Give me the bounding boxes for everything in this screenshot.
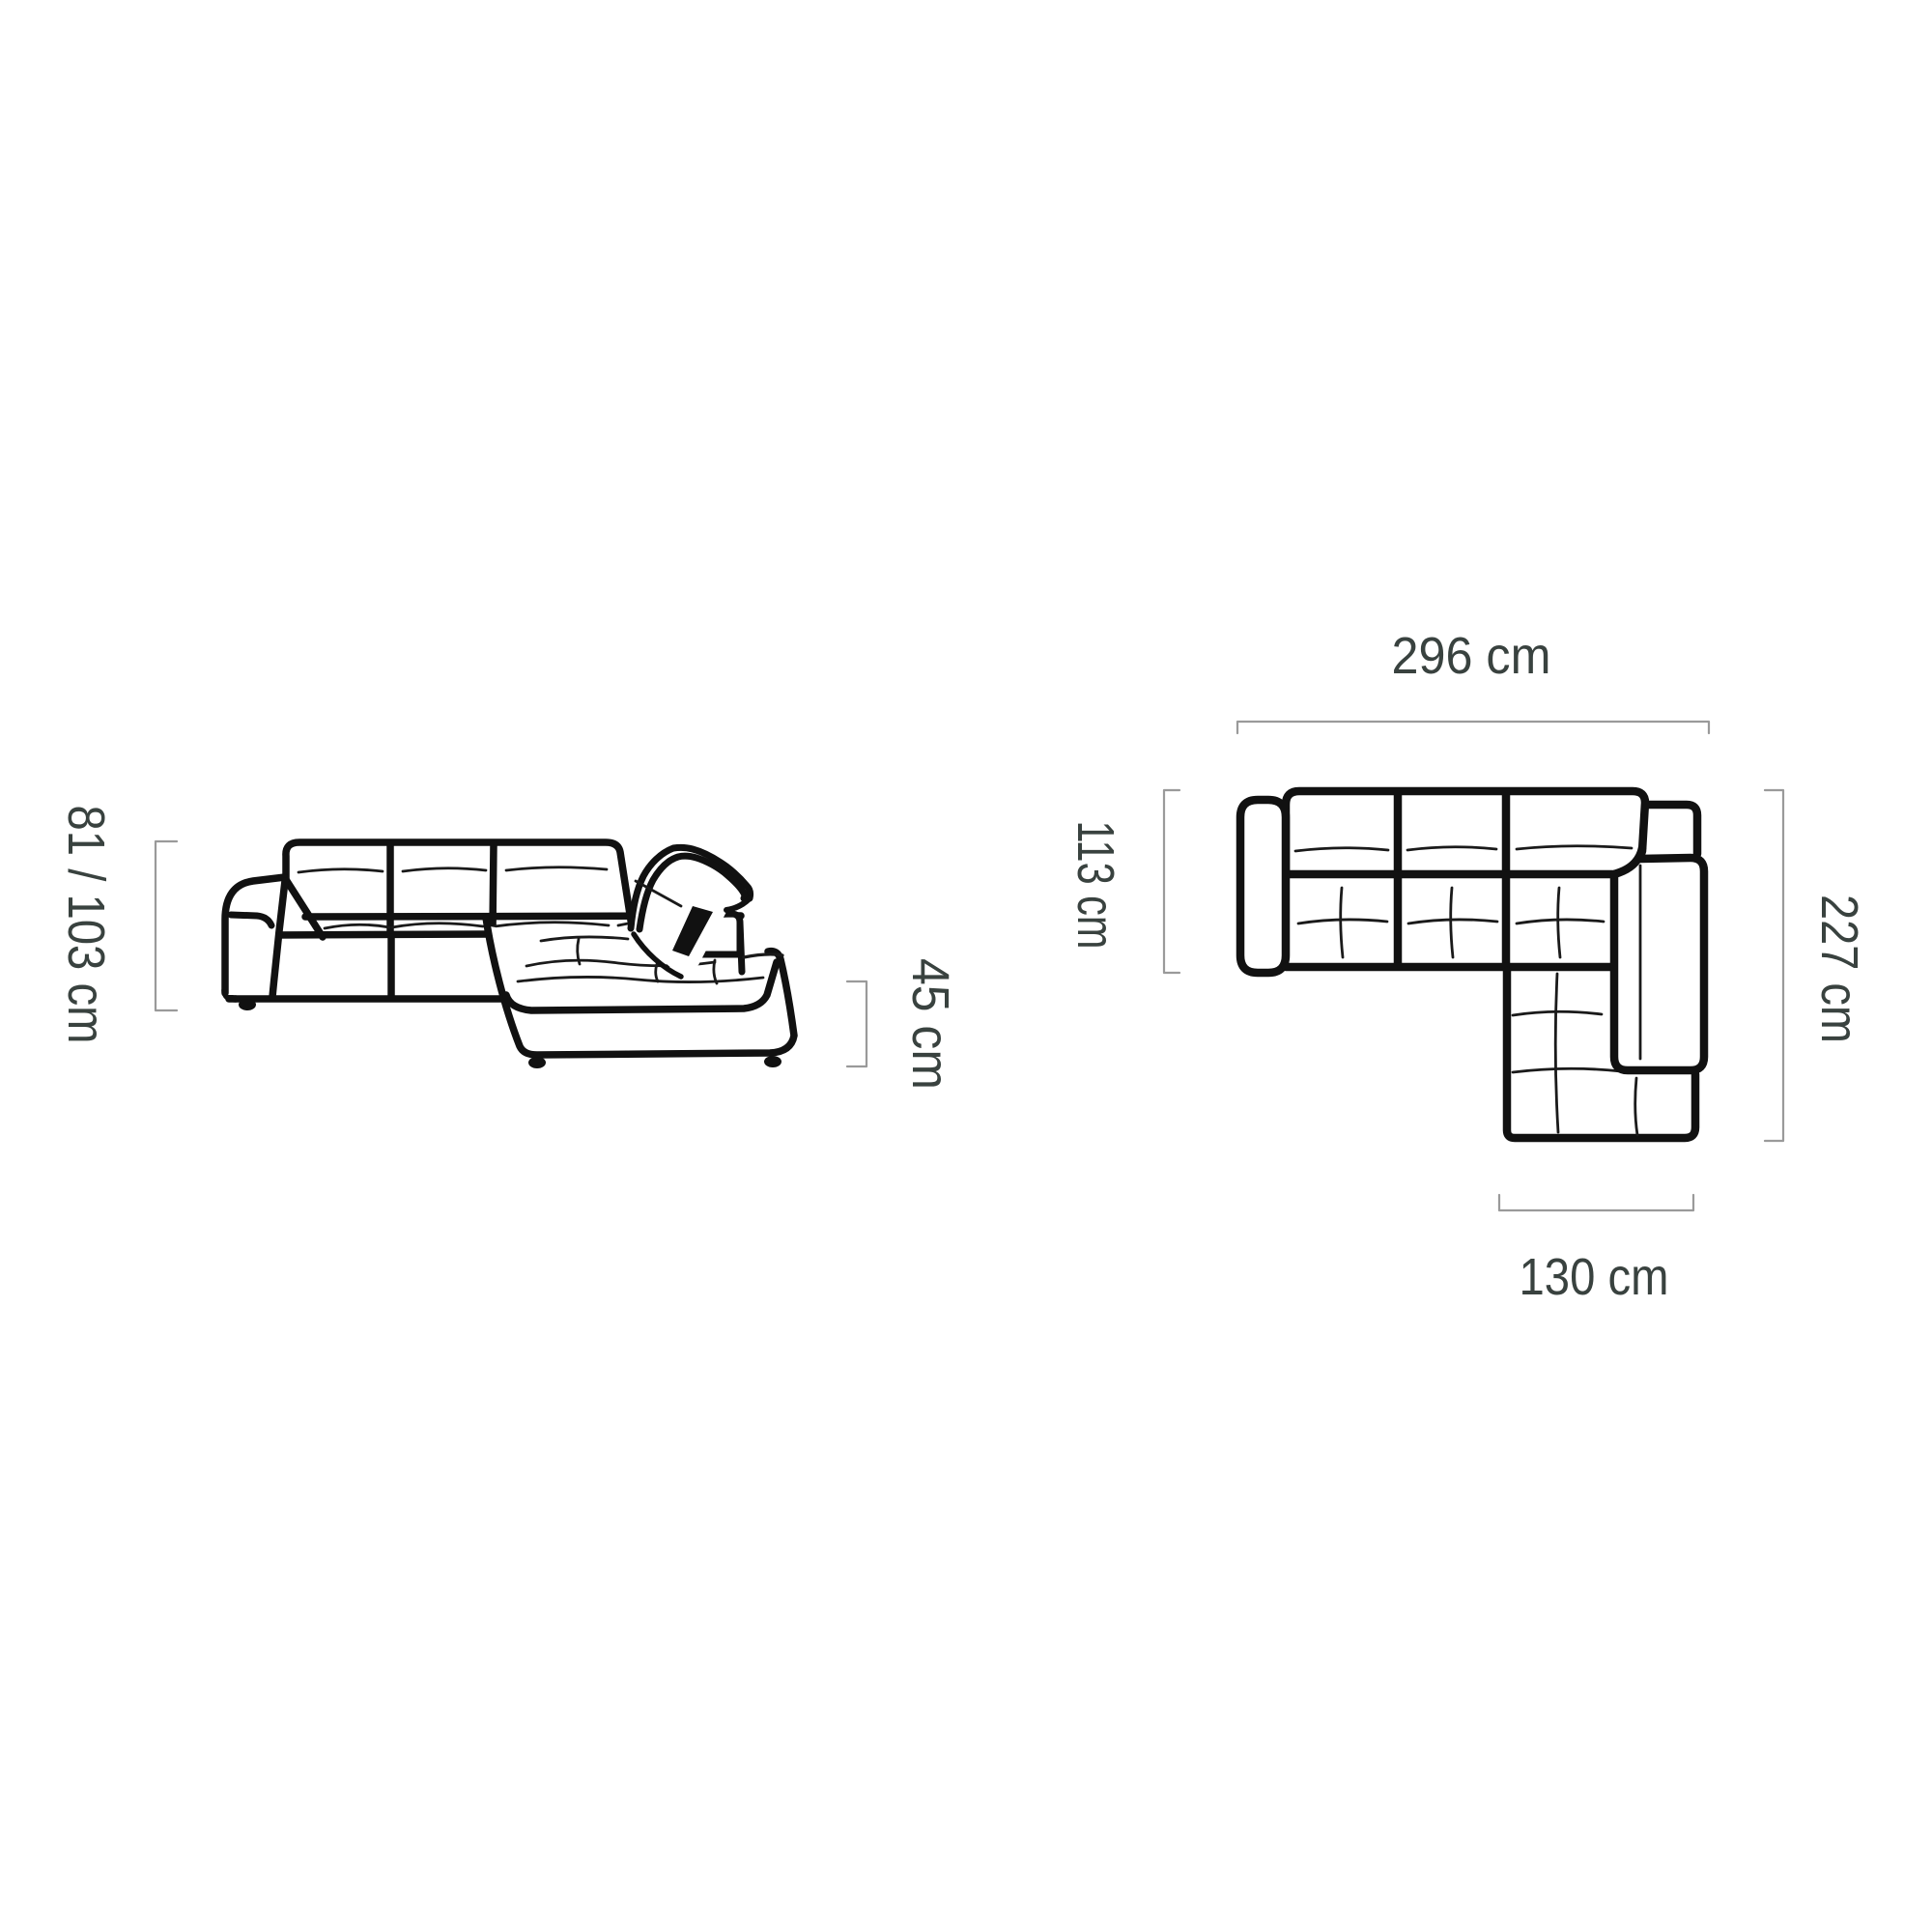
svg-text:227 cm: 227 cm (1810, 895, 1868, 1043)
svg-text:113 cm: 113 cm (1066, 821, 1124, 950)
svg-text:130 cm: 130 cm (1520, 1248, 1669, 1306)
svg-text:45 cm: 45 cm (901, 958, 959, 1090)
svg-text:296 cm: 296 cm (1392, 627, 1551, 685)
svg-text:81 / 103 cm: 81 / 103 cm (57, 806, 115, 1044)
